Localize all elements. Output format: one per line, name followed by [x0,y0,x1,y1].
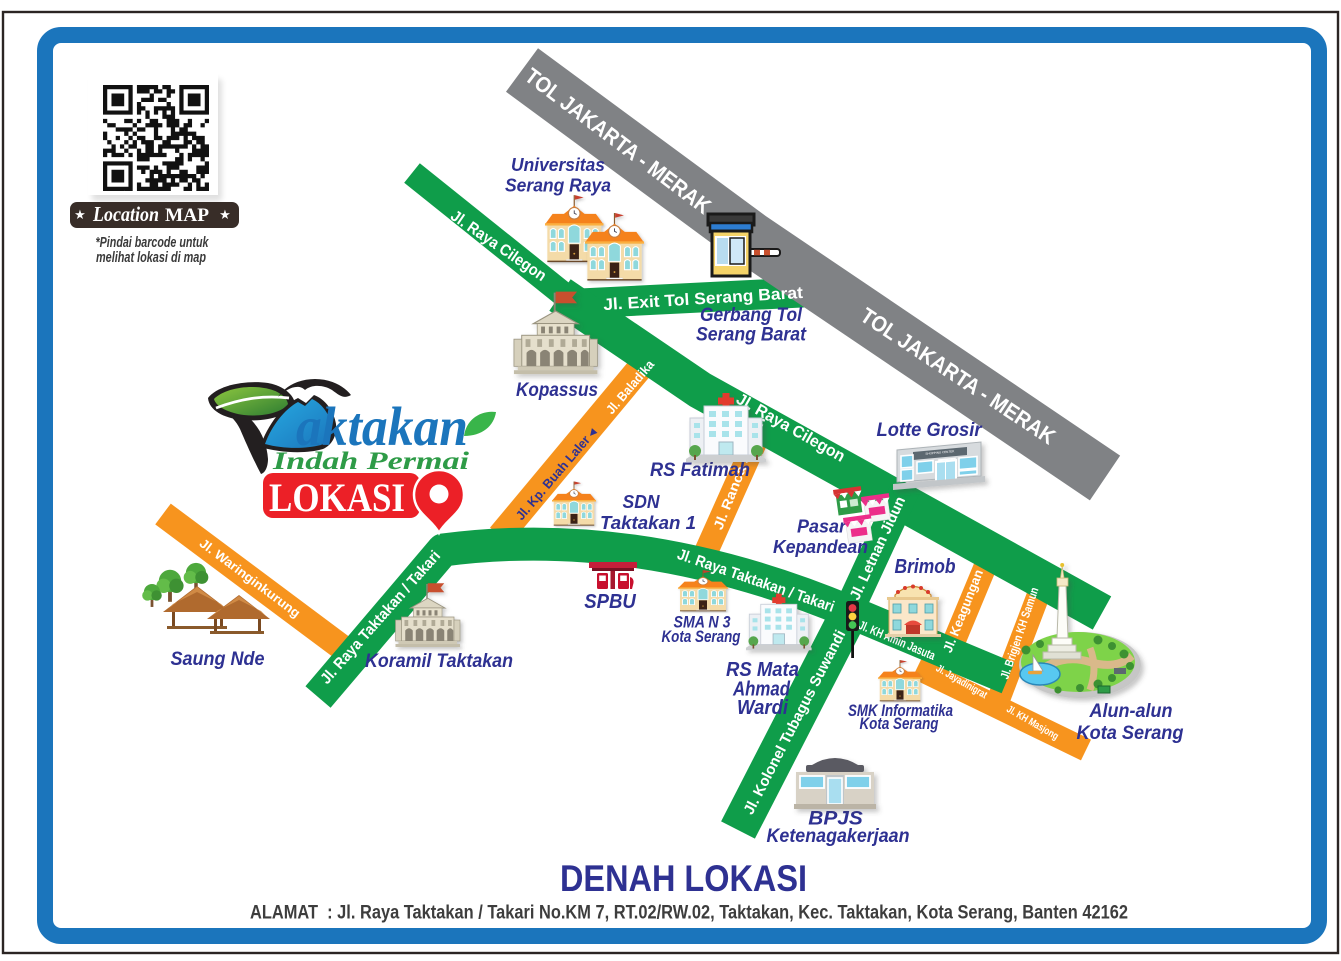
svg-text:Ketenagakerjaan: Ketenagakerjaan [767,825,910,847]
svg-text:ALAMAT : Jl. Raya Taktakan /: ALAMAT : Jl. Raya Taktakan / Takari No.K… [250,902,1128,924]
svg-text:Kota Serang: Kota Serang [1077,722,1184,744]
svg-text:melihat lokasi di map: melihat lokasi di map [96,250,206,266]
svg-text:Wardi: Wardi [737,697,788,719]
svg-text:Pasar: Pasar [797,517,847,537]
svg-text:Kota Serang: Kota Serang [662,628,741,646]
svg-text:RS Fatimah: RS Fatimah [650,460,750,481]
svg-text:Lotte Grosir: Lotte Grosir [877,419,983,441]
svg-text:Alun-alun: Alun-alun [1089,700,1173,722]
svg-text:*Pindai barcode untuk: *Pindai barcode untuk [96,235,210,251]
svg-text:Kota Serang: Kota Serang [860,715,939,733]
svg-text:SDN: SDN [623,491,661,512]
svg-text:LOKASI: LOKASI [269,475,405,520]
svg-text:Koramil Taktakan: Koramil Taktakan [365,650,513,672]
svg-text:Brimob: Brimob [895,556,956,578]
svg-text:Saung Nde: Saung Nde [171,648,265,670]
svg-text:DENAH LOKASI: DENAH LOKASI [560,858,807,899]
svg-text:Taktakan 1: Taktakan 1 [600,512,696,533]
svg-text:Universitas: Universitas [511,154,605,175]
svg-text:★: ★ [74,207,86,222]
svg-text:Location: Location [92,202,159,226]
svg-text:SPBU: SPBU [584,591,636,613]
svg-text:Serang Barat: Serang Barat [696,324,807,346]
svg-text:Kopassus: Kopassus [516,379,598,401]
svg-text:Serang Raya: Serang Raya [505,175,611,196]
svg-text:★: ★ [219,207,231,222]
svg-text:MAP: MAP [165,205,209,226]
